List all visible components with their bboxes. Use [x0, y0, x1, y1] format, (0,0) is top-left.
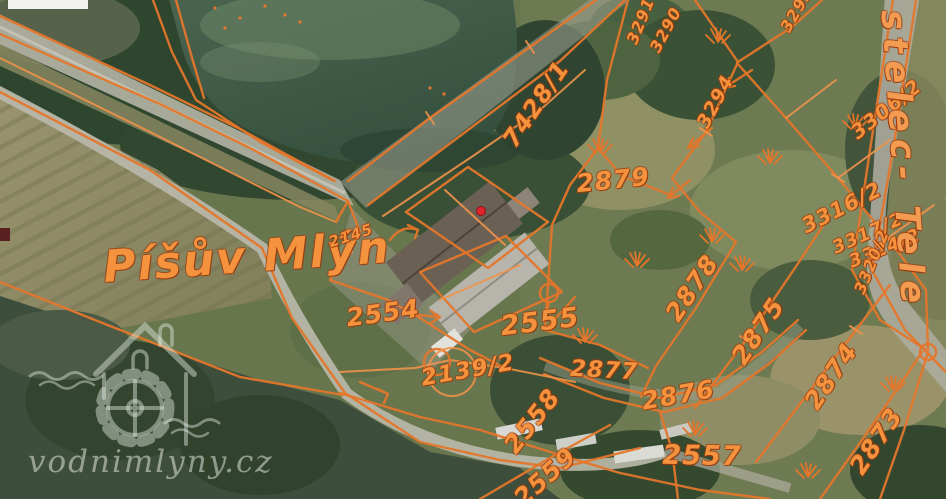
- mill-location-marker[interactable]: [477, 207, 486, 216]
- map-viewport[interactable]: 7428/12879Píšův Mlýn2145255425552139/225…: [0, 0, 946, 499]
- top-left-artifact: [8, 0, 88, 9]
- aerial-map: [0, 0, 946, 499]
